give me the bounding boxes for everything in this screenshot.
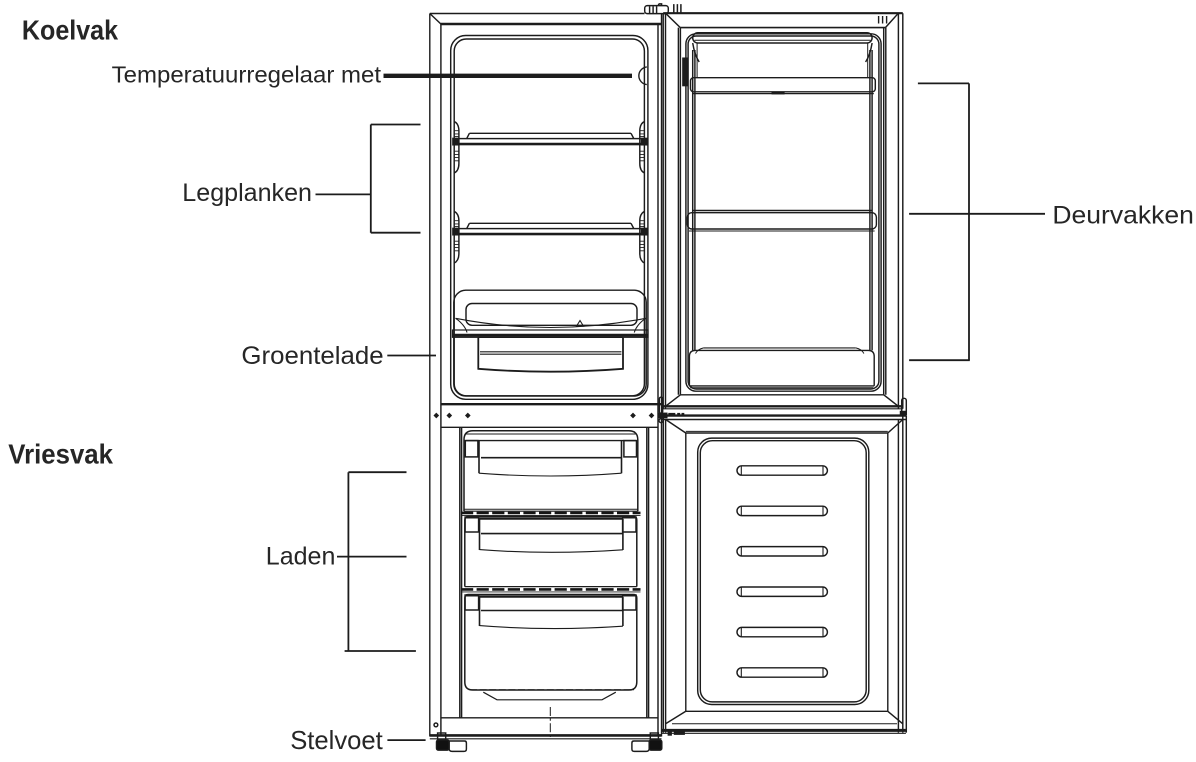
svg-text:Laden: Laden [266,542,336,570]
svg-text:Vriesvak: Vriesvak [8,438,113,469]
svg-text:Stelvoet: Stelvoet [290,725,383,755]
svg-text:Legplanken: Legplanken [182,179,312,207]
svg-text:Koelvak: Koelvak [22,14,119,45]
svg-text:Temperatuurregelaar met: Temperatuurregelaar met [112,62,382,88]
svg-text:Groentelade: Groentelade [241,342,383,370]
svg-text:Deurvakken: Deurvakken [1052,202,1194,230]
